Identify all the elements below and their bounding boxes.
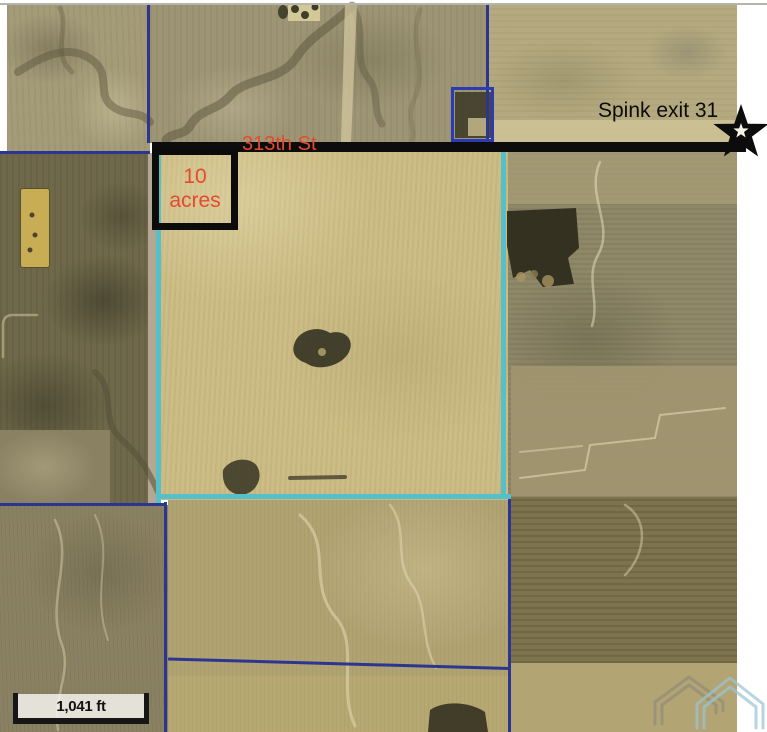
- property-line-vertical-3: [164, 502, 167, 732]
- field-roadside-strip: [487, 120, 737, 142]
- acreage-line1: 10: [183, 165, 206, 189]
- property-line-vertical-1: [147, 4, 150, 143]
- field-right-terraces: [511, 366, 737, 496]
- scale-label: 1,041 ft: [18, 694, 144, 718]
- farmstead-boundary-rect: [451, 87, 494, 142]
- property-line-vertical-4: [508, 494, 511, 732]
- property-line-horizontal-2: [0, 503, 164, 506]
- realty-logo-watermark: [645, 656, 767, 732]
- field-top-left: [6, 4, 150, 153]
- field-gold-strip: [20, 188, 50, 268]
- parcel-outline-south: [156, 494, 511, 499]
- field-top-middle: [150, 4, 487, 143]
- field-left-lower: [0, 430, 110, 505]
- street-label: 313th St: [242, 133, 317, 156]
- map-scale-bar: 1,041 ft: [13, 693, 149, 724]
- exit-label: Spink exit 31: [598, 99, 718, 123]
- field-bottom-right-dark: [511, 497, 737, 663]
- map-top-border: [0, 3, 767, 5]
- star-icon: [711, 103, 767, 163]
- field-bottom-middle-lower: [168, 676, 511, 732]
- scale-bracket-bottom: [13, 718, 149, 724]
- property-line-horizontal-left: [0, 151, 150, 154]
- page-margin-left: [0, 0, 7, 151]
- aerial-parcel-map: Spink exit 31 313th St 10 acres 1,041 ft: [0, 0, 767, 732]
- acreage-line2: acres: [169, 189, 220, 213]
- acreage-callout-box: 10 acres: [152, 148, 238, 230]
- parcel-outline-east: [501, 149, 506, 499]
